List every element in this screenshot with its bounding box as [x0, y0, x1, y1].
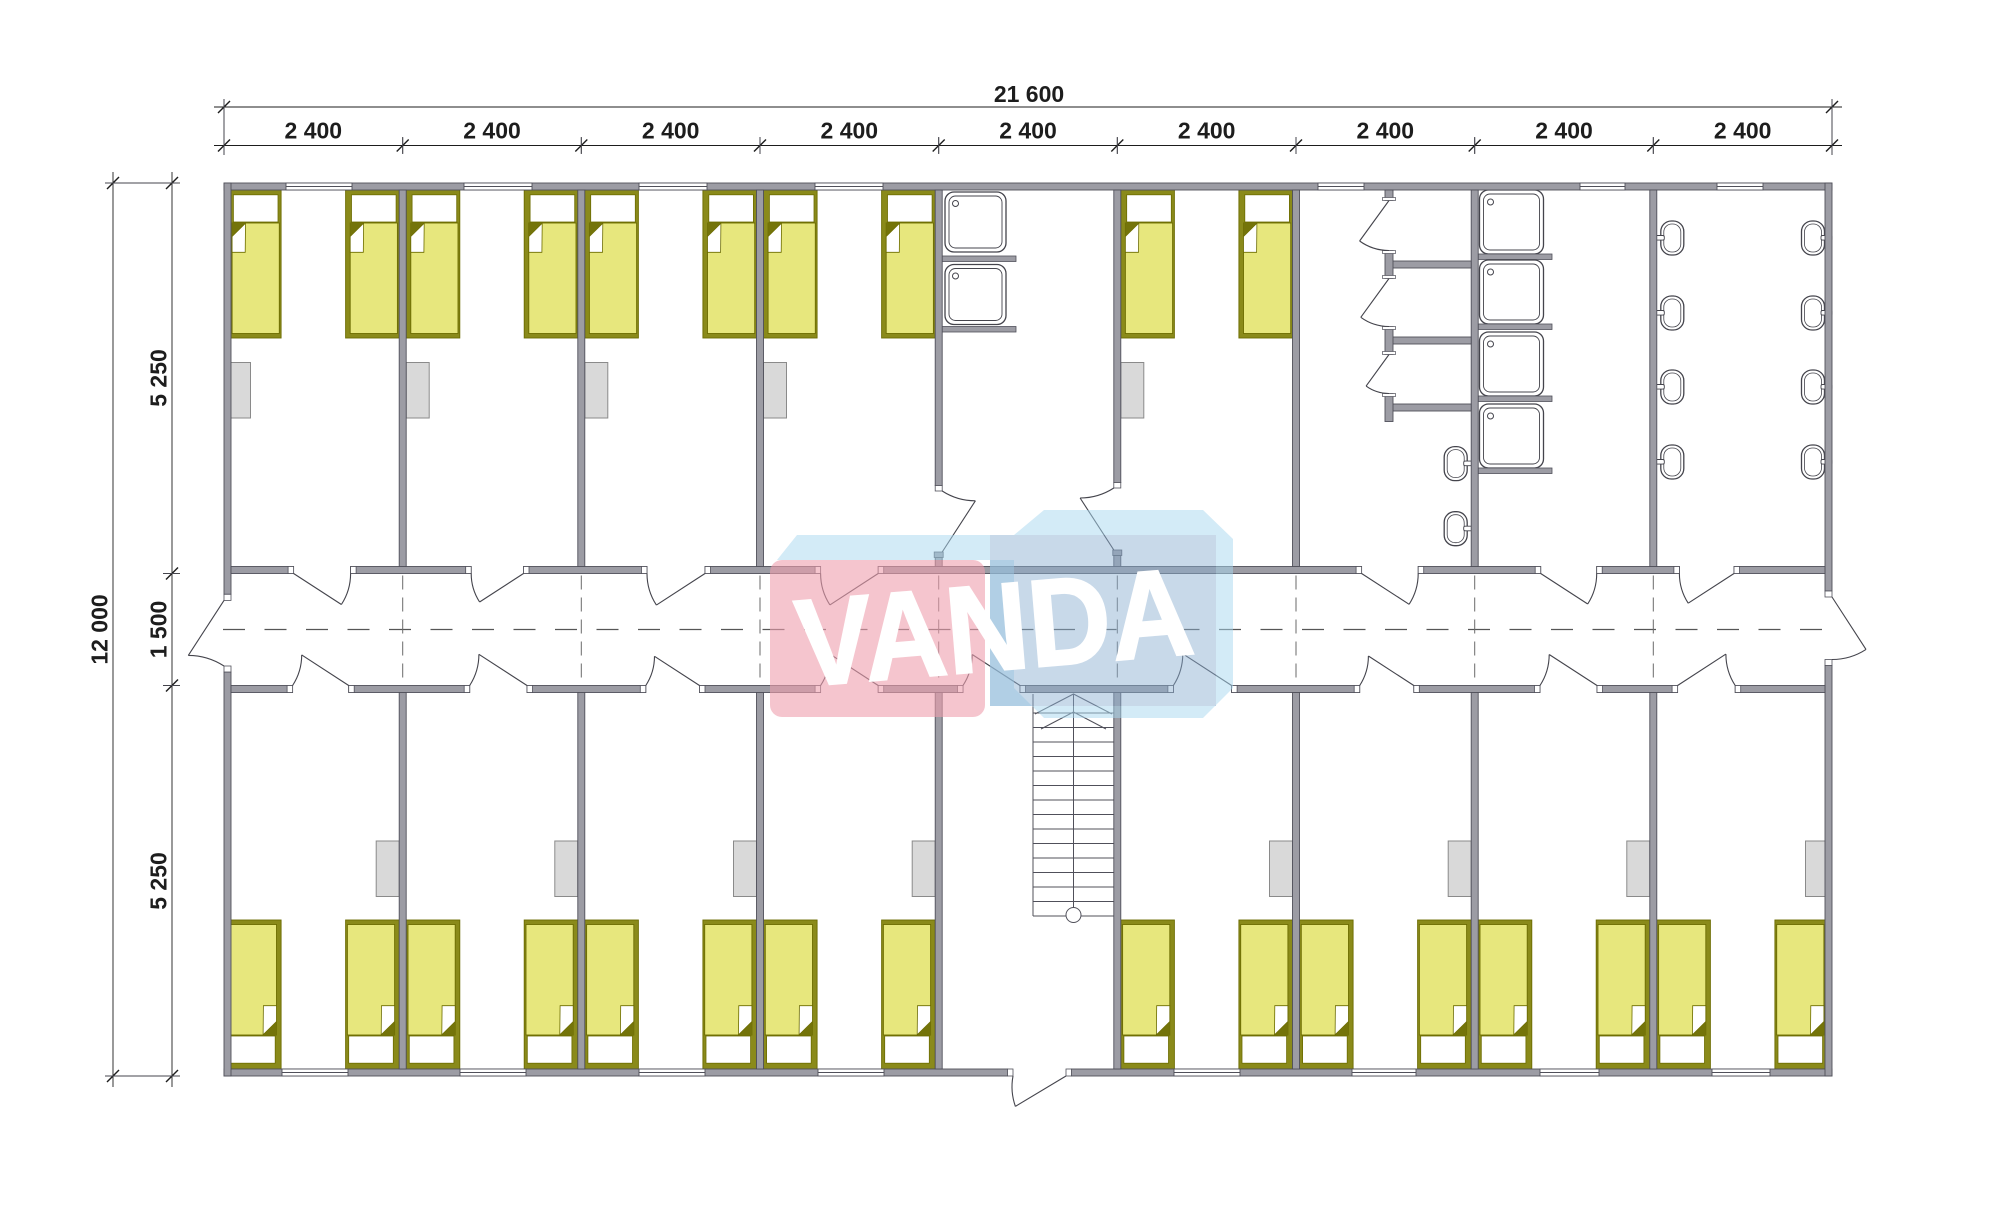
svg-text:2 400: 2 400	[285, 118, 343, 144]
svg-text:1 500: 1 500	[146, 601, 172, 659]
svg-text:2 400: 2 400	[1178, 118, 1236, 144]
svg-text:2 400: 2 400	[1357, 118, 1415, 144]
svg-text:5 250: 5 250	[146, 349, 172, 407]
svg-text:2 400: 2 400	[821, 118, 879, 144]
svg-text:2 400: 2 400	[1535, 118, 1593, 144]
svg-text:21 600: 21 600	[994, 81, 1064, 107]
svg-text:5 250: 5 250	[146, 852, 172, 910]
svg-text:2 400: 2 400	[1714, 118, 1772, 144]
svg-text:2 400: 2 400	[999, 118, 1057, 144]
svg-text:2 400: 2 400	[642, 118, 700, 144]
svg-text:12 000: 12 000	[87, 594, 113, 664]
svg-text:2 400: 2 400	[463, 118, 521, 144]
